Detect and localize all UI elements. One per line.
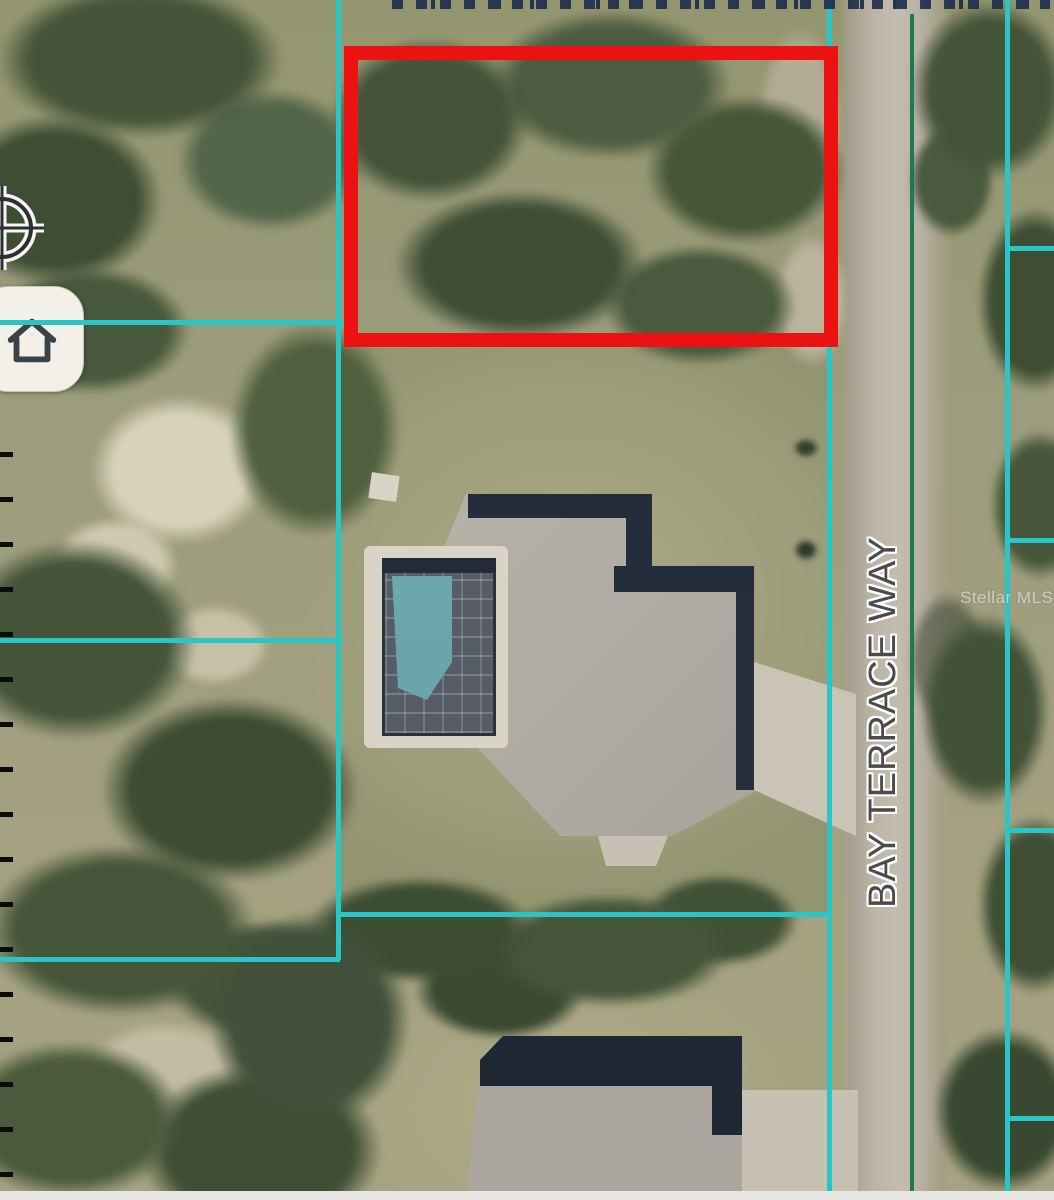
parcel-line bbox=[0, 638, 343, 643]
parcel-line bbox=[340, 912, 832, 917]
parcel-line bbox=[1005, 538, 1054, 543]
home-icon bbox=[1, 309, 63, 371]
crosshair-icon[interactable] bbox=[0, 182, 48, 274]
pool-enclosure-shadow bbox=[382, 558, 496, 573]
highlighted-lot-outline bbox=[344, 46, 838, 347]
bottom-strip bbox=[0, 1191, 1054, 1200]
parcel-line bbox=[1005, 828, 1054, 833]
stellar-mls-watermark: Stellar MLS bbox=[960, 588, 1053, 608]
survey-tick-marks bbox=[0, 452, 13, 1192]
parcel-line bbox=[0, 320, 345, 325]
street-name-label: BAY TERRACE WAY bbox=[856, 556, 932, 908]
aerial-map: BAY TERRACE WAY Stellar MLS bbox=[0, 0, 1054, 1200]
home-button[interactable] bbox=[0, 286, 84, 392]
parcel-line bbox=[336, 0, 341, 960]
shed-pad bbox=[368, 472, 399, 502]
parcel-line bbox=[1005, 1116, 1054, 1121]
parcel-line bbox=[0, 957, 340, 962]
parcel-line bbox=[1005, 246, 1054, 251]
clipped-plat-text bbox=[392, 0, 1050, 9]
